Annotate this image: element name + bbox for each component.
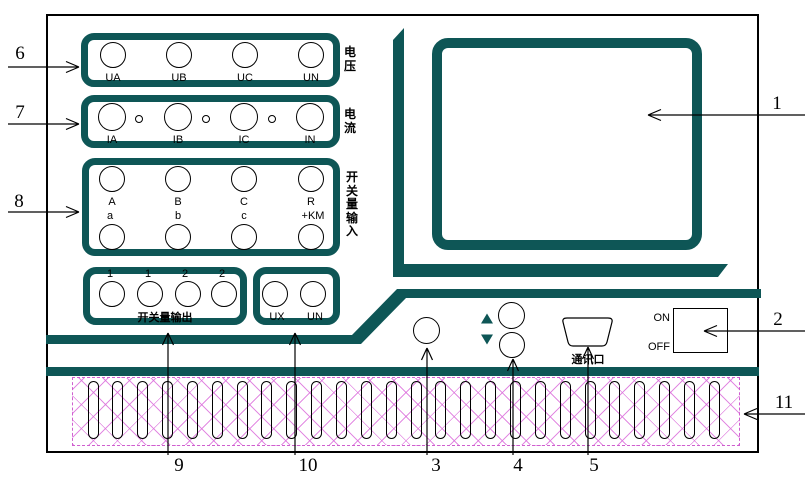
front-panel-diagram: UA UB UC UN 电压 IA IB IC IN 电流 A B C R a …	[0, 0, 805, 480]
callout-arrow-5	[583, 347, 594, 455]
callout-arrow-8	[8, 207, 79, 218]
callout-lines	[0, 0, 805, 480]
callout-arrow-10	[290, 333, 301, 455]
callout-arrow-7	[8, 119, 79, 130]
callout-arrow-4	[508, 359, 519, 455]
callout-arrow-6	[8, 62, 79, 73]
callout-arrow-9	[163, 333, 174, 455]
callout-arrow-1	[648, 110, 805, 121]
callout-arrow-3	[422, 348, 433, 455]
callout-arrow-2	[704, 326, 805, 337]
callout-arrow-11	[744, 409, 805, 420]
